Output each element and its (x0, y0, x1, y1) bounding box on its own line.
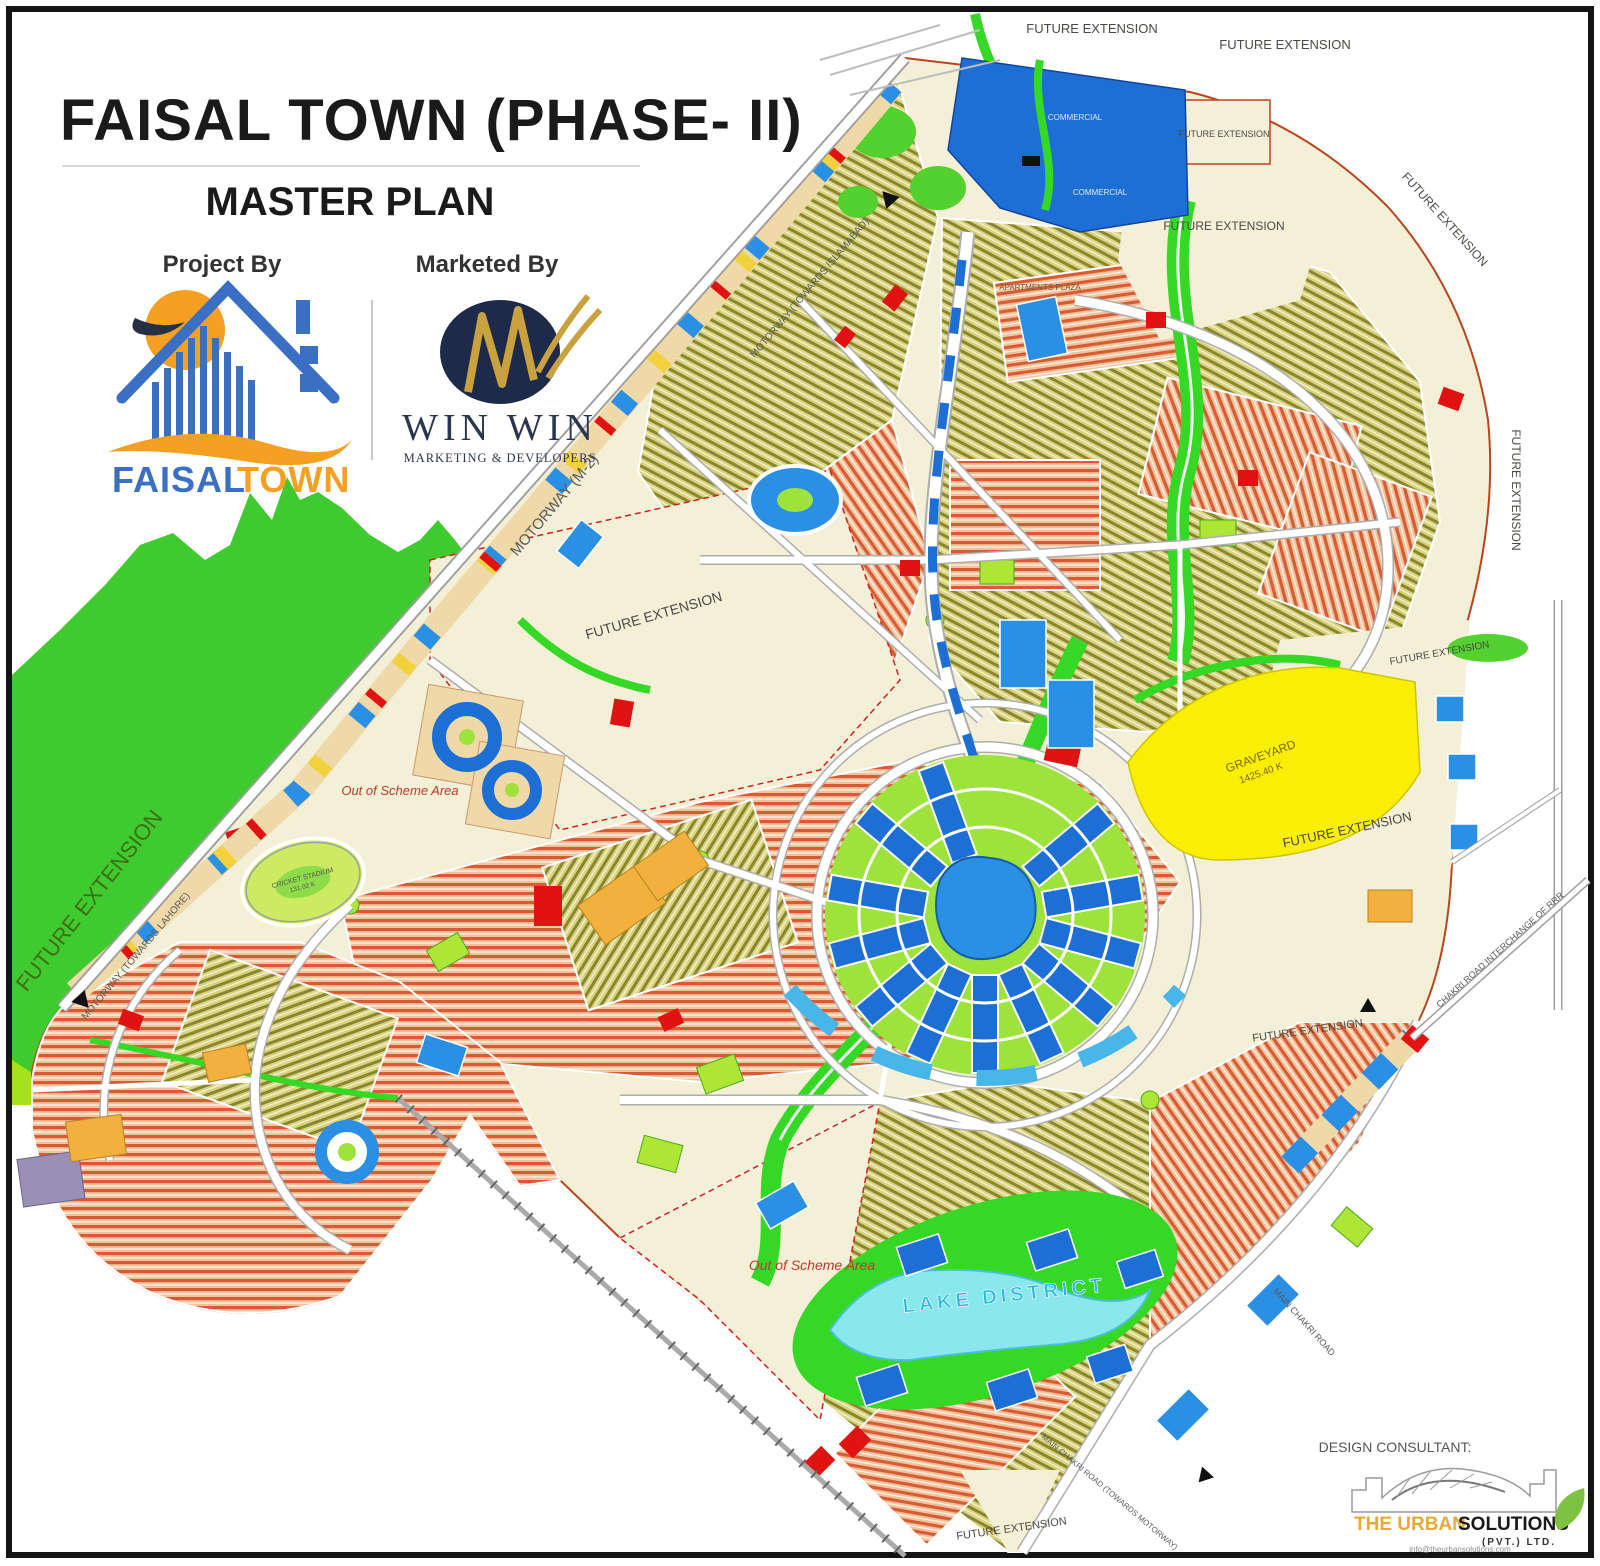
label-future-extension-ne: FUTURE EXTENSION (1163, 219, 1284, 233)
label-apartments-plaza: APARTMENTS PLAZA (999, 283, 1081, 292)
consultant-name-2: SOLUTIONS (1458, 1514, 1569, 1535)
project-by-label: Project By (163, 251, 282, 278)
page-subtitle: MASTER PLAN (206, 180, 495, 224)
master-plan-page: COMMERCIAL COMMERCIAL (0, 0, 1600, 1566)
label-future-extension-box: FUTURE EXTENSION (1178, 129, 1269, 139)
master-plan-map: COMMERCIAL COMMERCIAL (0, 0, 1600, 1566)
page-title: FAISAL TOWN (PHASE- II) (60, 88, 803, 153)
consultant-email: info@theurbansolutions.com (1409, 1545, 1511, 1554)
label-future-extension-right-vert: FUTURE EXTENSION (1509, 429, 1523, 550)
label-commercial-2: COMMERCIAL (1073, 188, 1128, 197)
faisal-logo-word2: TOWN (237, 459, 350, 500)
label-commercial-1: COMMERCIAL (1048, 113, 1103, 122)
label-future-extension-top1: FUTURE EXTENSION (1026, 21, 1157, 36)
faisal-logo-word1: FAISAL (112, 459, 246, 500)
oval-feature (749, 466, 841, 534)
marketed-by-label: Marketed By (416, 251, 559, 278)
label-out-of-scheme-1: Out of Scheme Area (341, 783, 458, 798)
winwin-tagline: MARKETING & DEVELOPERS (404, 451, 597, 465)
design-consultant-label: DESIGN CONSULTANT: (1319, 1439, 1472, 1455)
winwin-name: WIN WIN (402, 407, 598, 449)
downtown-lake (936, 857, 1036, 959)
consultant-name-1: THE URBAN (1354, 1514, 1466, 1535)
label-out-of-scheme-2: Out of Scheme Area (749, 1257, 876, 1273)
label-future-extension-top2: FUTURE EXTENSION (1219, 37, 1350, 52)
